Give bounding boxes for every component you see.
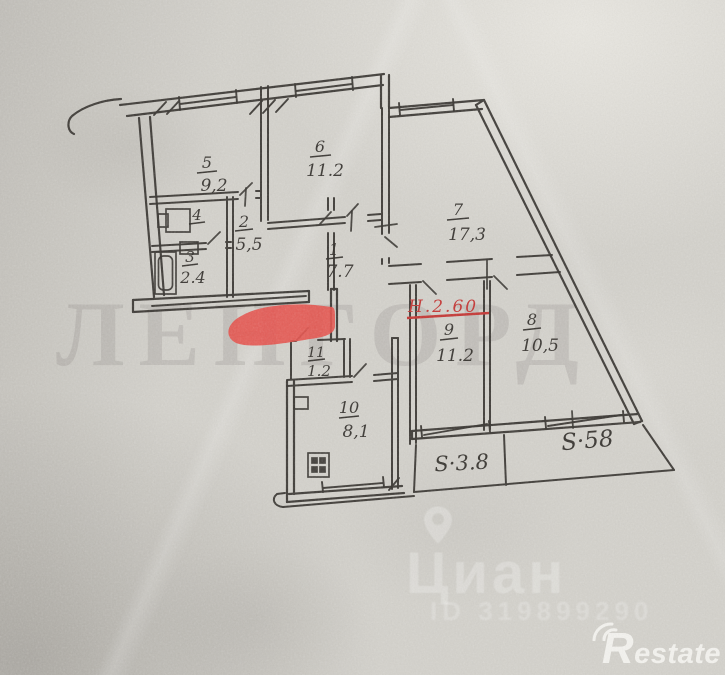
svg-text:8,1: 8,1 (342, 422, 369, 442)
svg-text:5,5: 5,5 (235, 235, 262, 255)
svg-text:2.4: 2.4 (179, 268, 205, 287)
floorplan-photo: ЛЕНГОРД (0, 0, 725, 675)
svg-text:7.7: 7.7 (326, 262, 353, 282)
toilet-icon (166, 209, 190, 232)
room-label-9: 9 11.2 (436, 320, 474, 366)
svg-text:2: 2 (238, 212, 249, 231)
svg-text:6: 6 (315, 137, 325, 156)
svg-text:8: 8 (527, 310, 537, 329)
svg-text:11.2: 11.2 (306, 161, 344, 181)
balcony-label-s58: S·58 (560, 426, 614, 456)
room-label-7: 7 17,3 (447, 200, 486, 245)
svg-text:3: 3 (185, 248, 195, 266)
svg-text:17,3: 17,3 (448, 225, 486, 245)
svg-text:S·3.8: S·3.8 (434, 450, 490, 477)
svg-text:9: 9 (444, 320, 454, 339)
svg-text:1.2: 1.2 (307, 362, 331, 380)
svg-text:11.2: 11.2 (436, 346, 474, 366)
svg-text:4: 4 (191, 206, 202, 224)
stove-icon (308, 453, 329, 477)
room-label-1: 1 7.7 (326, 240, 354, 282)
svg-text:9,2: 9,2 (200, 176, 227, 196)
svg-text:10: 10 (339, 398, 359, 417)
vent-icon (294, 397, 308, 409)
svg-text:1: 1 (329, 240, 339, 259)
room-label-6: 6 11.2 (306, 137, 344, 181)
balcony-label-s38: S·3.8 (434, 450, 490, 477)
svg-text:7: 7 (453, 200, 464, 219)
room-label-4: 4 (189, 206, 205, 224)
room-label-5: 5 9,2 (197, 153, 228, 196)
svg-text:10,5: 10,5 (521, 336, 559, 356)
floorplan-drawing: Н.2.60 5 9,2 6 11.2 7 17,3 4 (0, 0, 725, 675)
room-label-10: 10 8,1 (339, 398, 370, 442)
svg-text:S·58: S·58 (560, 426, 614, 456)
room-label-11: 11 1.2 (307, 345, 331, 380)
svg-text:5: 5 (202, 153, 212, 172)
room-label-2: 2 5,5 (235, 212, 263, 255)
room-label-8: 8 10,5 (521, 310, 559, 356)
